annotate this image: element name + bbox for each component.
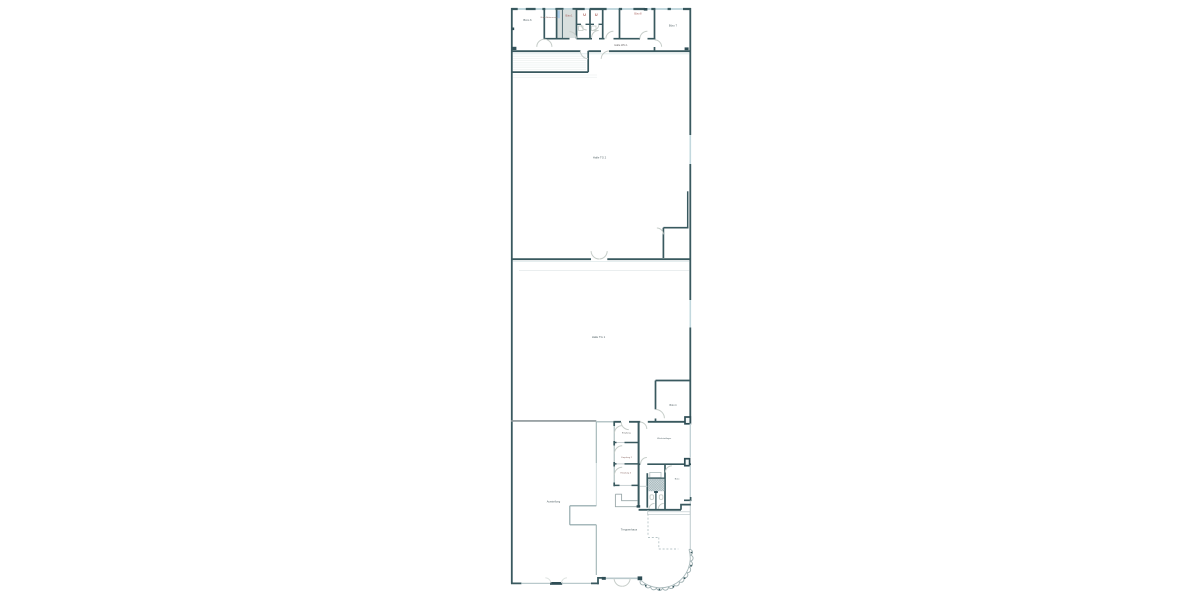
svg-text:Halle TG 1: Halle TG 1 [592, 335, 606, 339]
svg-text:Büro: Büro [675, 477, 680, 480]
svg-text:Halle WG 1: Halle WG 1 [614, 43, 628, 47]
svg-text:Treppenhaus: Treppenhaus [621, 528, 638, 532]
svg-text:Empfang: Empfang [622, 433, 632, 435]
svg-text:Büro 7: Büro 7 [669, 23, 678, 27]
svg-text:U: U [583, 13, 586, 17]
svg-text:Büro 1: Büro 1 [565, 14, 573, 17]
svg-text:Ausstellung: Ausstellung [547, 499, 561, 503]
svg-text:Halle TG 2: Halle TG 2 [593, 155, 607, 159]
svg-text:Büro-Nebenraum: Büro-Nebenraum [541, 16, 558, 19]
svg-text:Büro 4: Büro 4 [669, 404, 677, 407]
svg-text:Büro 8: Büro 8 [634, 13, 642, 16]
svg-text:Werkstattlager: Werkstattlager [657, 437, 671, 440]
svg-text:Büro 6: Büro 6 [523, 18, 532, 22]
svg-text:U: U [595, 13, 598, 17]
svg-text:Empfang 2: Empfang 2 [621, 457, 632, 459]
svg-text:Empfang 3: Empfang 3 [621, 472, 632, 474]
